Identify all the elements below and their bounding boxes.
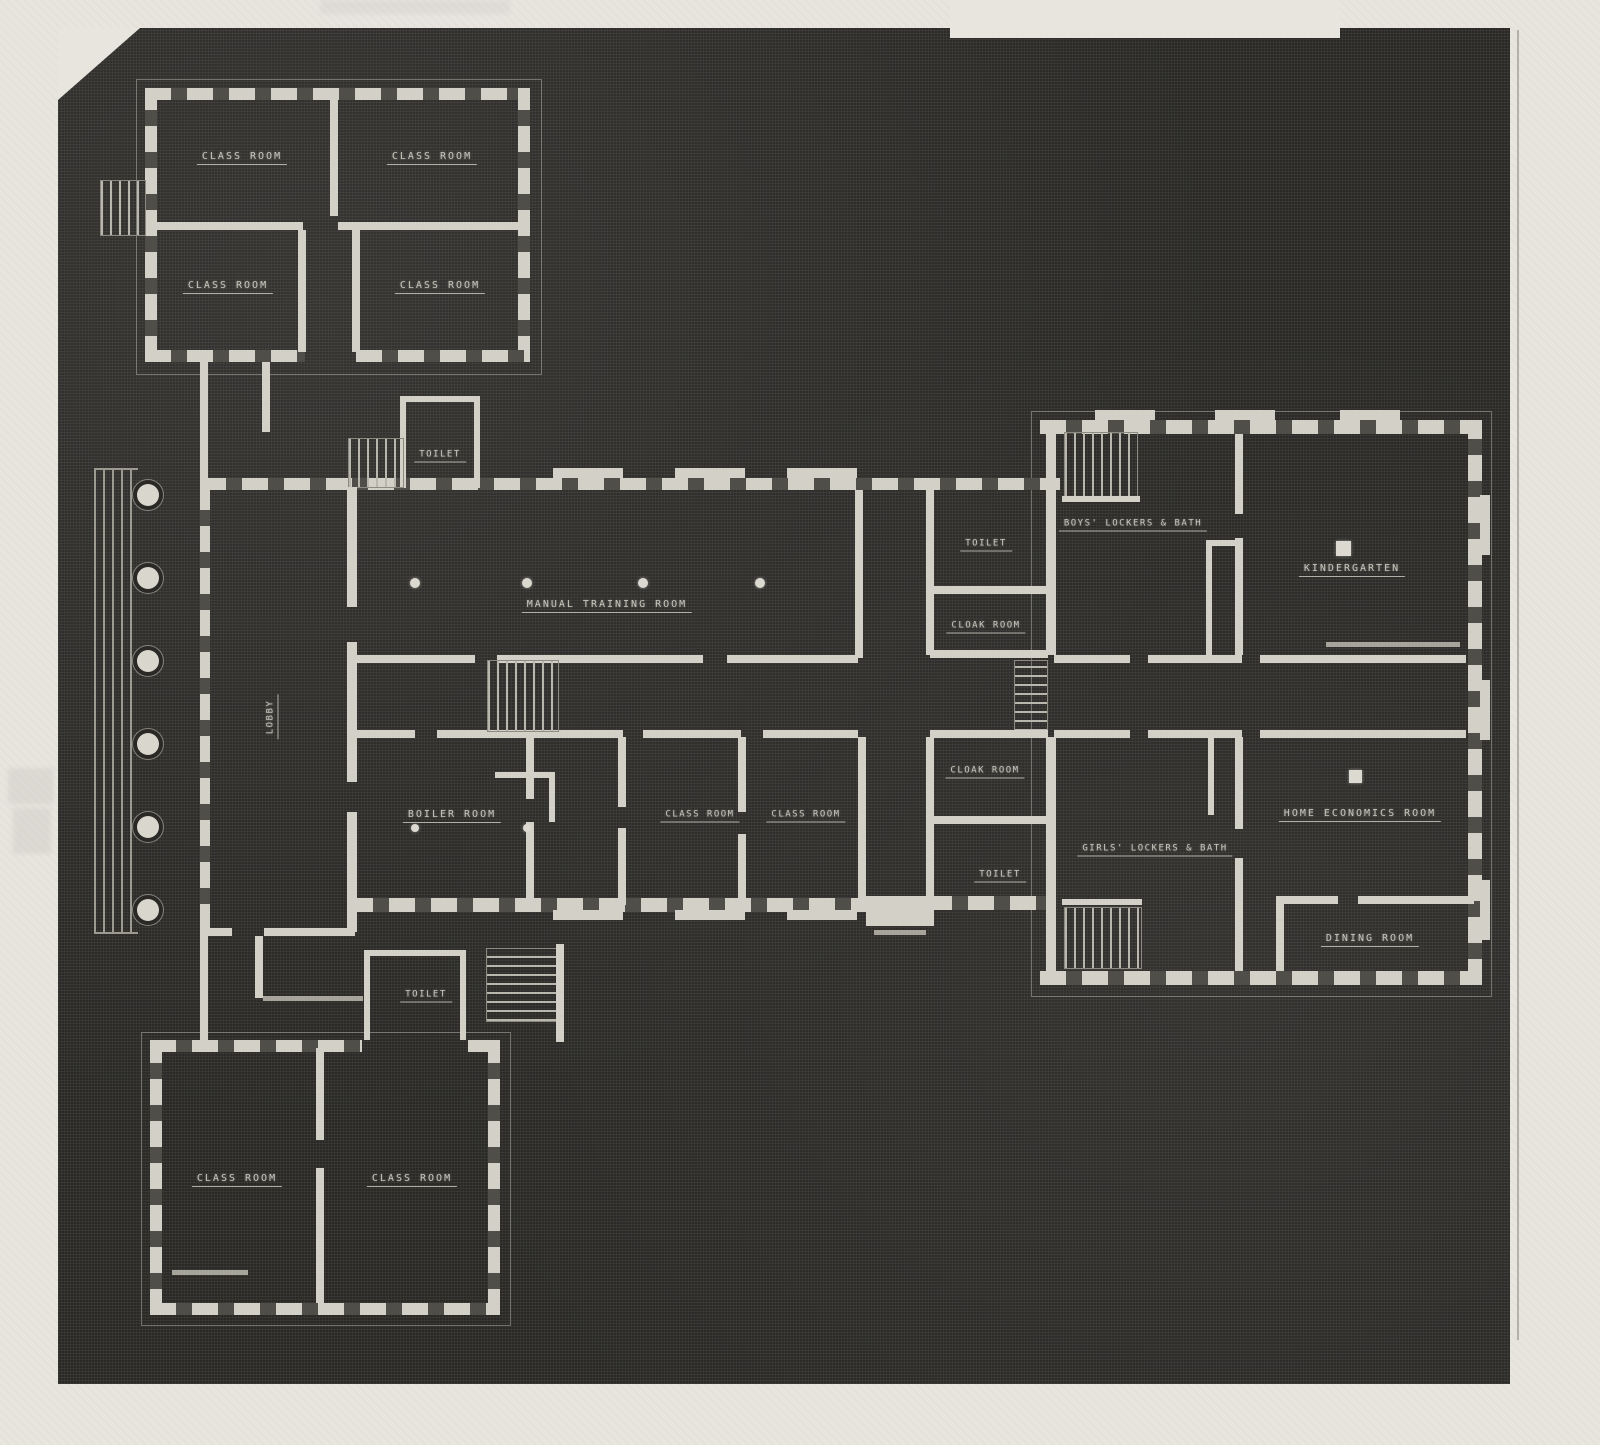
scan-smudge [320, 0, 510, 14]
column-dot-icon [410, 578, 420, 588]
wall [787, 910, 857, 920]
room-label-toilet-lower-right: TOILET [974, 870, 1026, 883]
room-label-classroom-nw-3: CLASS ROOM [183, 280, 273, 294]
room-label-toilet-north: TOILET [414, 450, 466, 463]
portico-column-icon [137, 650, 159, 672]
portico-column-icon [137, 567, 159, 589]
wall [1046, 428, 1056, 655]
wall [356, 350, 530, 362]
wall [738, 834, 746, 905]
wall [316, 1168, 324, 1303]
wall [298, 230, 306, 352]
wall [1215, 410, 1275, 420]
wall [930, 730, 1048, 738]
wall [364, 950, 466, 956]
column-dot-icon [523, 824, 531, 832]
wall [347, 812, 357, 932]
wall [930, 586, 1048, 594]
wall [1480, 680, 1490, 740]
wall [1260, 655, 1466, 663]
wall [145, 350, 305, 362]
wall [1062, 899, 1142, 905]
wall [200, 936, 208, 1040]
page-edge-line [1517, 30, 1519, 1340]
wall [643, 730, 741, 738]
wall [858, 737, 866, 905]
wall [1206, 540, 1212, 655]
wall [526, 737, 534, 799]
wall [255, 936, 263, 998]
room-label-classroom-c-2: CLASS ROOM [766, 810, 845, 823]
wall [1276, 896, 1284, 971]
wall [263, 996, 363, 1001]
wall [926, 490, 934, 655]
wall [1208, 737, 1214, 815]
wall [763, 730, 858, 738]
wall [738, 737, 746, 812]
wall [488, 1040, 500, 1315]
stair-icon [486, 948, 558, 1022]
wall [618, 737, 626, 807]
column-dot-icon [755, 578, 765, 588]
stair-icon [100, 180, 146, 236]
column-dot-icon [411, 824, 419, 832]
bleedthrough-mark [8, 768, 54, 804]
stair-icon [1064, 907, 1142, 969]
wall [675, 468, 745, 478]
wall [1046, 737, 1056, 971]
room-label-boys-lockers: BOYS' LOCKERS & BATH [1059, 519, 1207, 532]
wall [353, 655, 475, 663]
wall [874, 930, 926, 935]
wall [1235, 538, 1243, 655]
wall [526, 822, 534, 905]
wall [549, 772, 555, 822]
wall [787, 468, 857, 478]
portico-column-icon [137, 733, 159, 755]
wall [727, 655, 858, 663]
wall [930, 650, 1048, 658]
stair-icon [487, 660, 559, 732]
wall [930, 816, 1048, 824]
floor-plan-linework: CLASS ROOMCLASS ROOMCLASS ROOMCLASS ROOM… [0, 0, 1600, 1445]
room-label-classroom-s-2: CLASS ROOM [367, 1173, 457, 1187]
column-dot-icon [522, 578, 532, 588]
wall [347, 487, 357, 607]
wall [855, 490, 863, 658]
room-label-classroom-nw-4: CLASS ROOM [395, 280, 485, 294]
room-label-toilet-upper-right: TOILET [960, 539, 1012, 552]
wall [474, 396, 480, 488]
wall [1206, 540, 1240, 546]
wall [1054, 730, 1130, 738]
entrance-steps [94, 468, 138, 934]
room-label-boiler-room: BOILER ROOM [403, 809, 501, 823]
wall [338, 222, 522, 230]
wall [1480, 495, 1490, 555]
wall [400, 396, 480, 402]
room-label-lobby: LOBBY [266, 695, 279, 740]
wall [1260, 730, 1466, 738]
wall [364, 950, 370, 1040]
wall [347, 642, 357, 782]
wall [353, 730, 415, 738]
room-label-manual-training: MANUAL TRAINING ROOM [522, 599, 692, 613]
wall [1480, 880, 1490, 940]
wall [1235, 434, 1243, 514]
wall [556, 944, 564, 1042]
stair-icon [1014, 660, 1048, 732]
wall [153, 222, 303, 230]
wall [1148, 655, 1242, 663]
bleedthrough-mark [13, 808, 51, 854]
wall [1340, 410, 1400, 420]
room-label-classroom-s-1: CLASS ROOM [192, 1173, 282, 1187]
wall [1235, 858, 1243, 971]
room-label-toilet-south: TOILET [400, 990, 452, 1003]
wall [264, 928, 355, 936]
wall [172, 1270, 248, 1275]
stair-icon [348, 438, 404, 488]
wall [200, 928, 232, 936]
stair-icon [1064, 432, 1138, 498]
wall [200, 478, 1060, 490]
wall [150, 1040, 362, 1052]
wall [1326, 642, 1460, 647]
wall [495, 772, 555, 778]
wall [1276, 896, 1338, 904]
wall [1095, 410, 1155, 420]
wall [352, 230, 360, 352]
portico-column-icon [137, 484, 159, 506]
wall [1235, 737, 1243, 829]
wall [1040, 971, 1482, 985]
wall [1148, 730, 1242, 738]
column-pier-icon [1336, 541, 1351, 556]
wall [553, 910, 623, 920]
wall [553, 468, 623, 478]
room-label-dining-room: DINING ROOM [1321, 933, 1419, 947]
wall [200, 362, 208, 480]
wall [1358, 896, 1474, 904]
wall [618, 828, 626, 905]
wall [926, 896, 1054, 910]
wall [150, 1040, 162, 1315]
wall [1054, 655, 1130, 663]
room-label-girls-lockers: GIRLS' LOCKERS & BATH [1077, 844, 1232, 857]
room-label-cloak-room-lower: CLOAK ROOM [945, 766, 1024, 779]
portico-column-icon [137, 899, 159, 921]
wall [675, 910, 745, 920]
wall [866, 896, 934, 926]
paper-top-band [950, 0, 1340, 38]
room-label-classroom-nw-1: CLASS ROOM [197, 151, 287, 165]
room-label-home-economics: HOME ECONOMICS ROOM [1279, 808, 1441, 822]
column-pier-icon [1349, 770, 1362, 783]
room-label-kindergarten: KINDERGARTEN [1299, 563, 1405, 577]
room-label-cloak-room-upper: CLOAK ROOM [946, 621, 1025, 634]
wall [316, 1048, 324, 1140]
column-dot-icon [638, 578, 648, 588]
wall [200, 487, 210, 930]
wall [1062, 496, 1140, 502]
scanned-blueprint-page: CLASS ROOMCLASS ROOMCLASS ROOMCLASS ROOM… [0, 0, 1600, 1445]
wall [262, 362, 270, 432]
wall [150, 1303, 500, 1315]
wall [460, 950, 466, 1040]
room-label-classroom-nw-2: CLASS ROOM [387, 151, 477, 165]
room-label-classroom-c-1: CLASS ROOM [660, 810, 739, 823]
portico-column-icon [137, 816, 159, 838]
wall [330, 96, 338, 216]
